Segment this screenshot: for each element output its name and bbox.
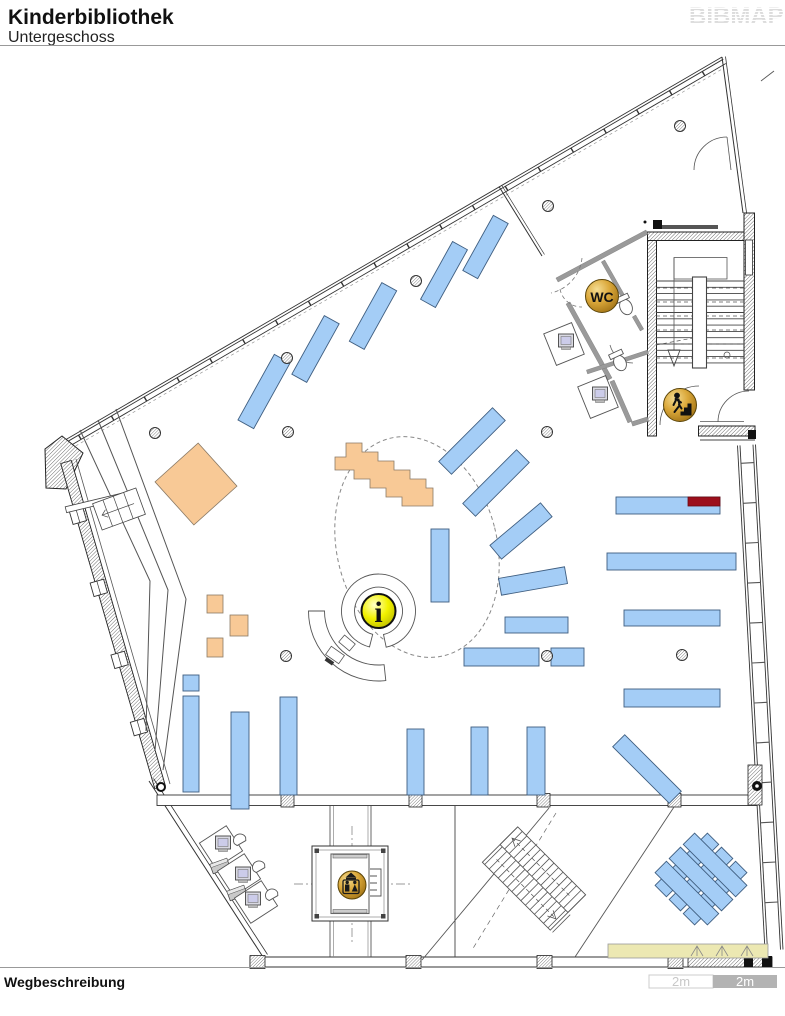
svg-text:BIBMAP: BIBMAP bbox=[689, 3, 784, 30]
svg-text:WC: WC bbox=[590, 289, 613, 305]
svg-text:Kinderbibliothek: Kinderbibliothek bbox=[8, 6, 174, 29]
svg-text:i: i bbox=[374, 596, 382, 629]
svg-text:2m: 2m bbox=[672, 974, 690, 989]
svg-text:2m: 2m bbox=[736, 974, 754, 989]
svg-text:Wegbeschreibung: Wegbeschreibung bbox=[4, 974, 125, 990]
svg-text:Untergeschoss: Untergeschoss bbox=[8, 29, 115, 46]
